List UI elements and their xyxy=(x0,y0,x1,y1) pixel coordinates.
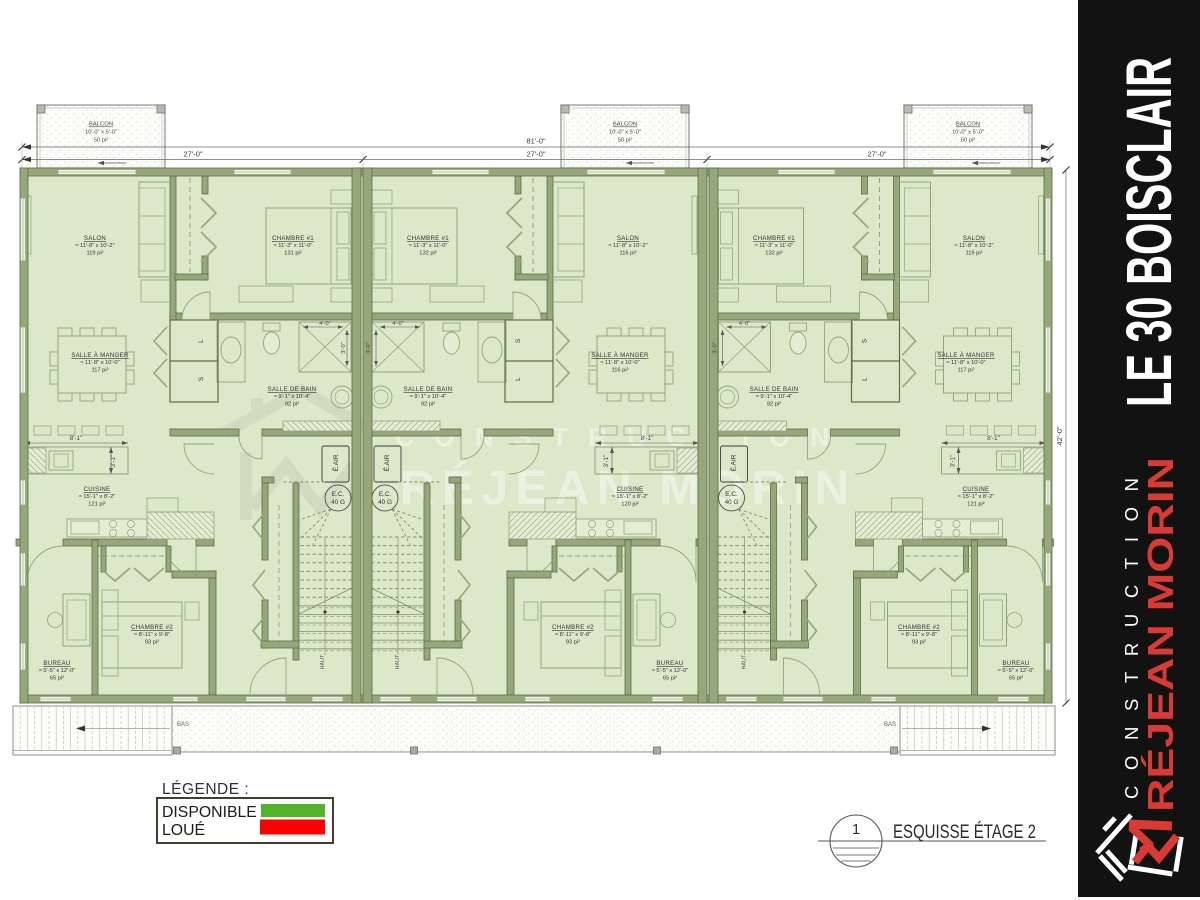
svg-text:116 pi²: 116 pi² xyxy=(620,250,637,256)
svg-text:≈ 8'-11" x 9'-8": ≈ 8'-11" x 9'-8" xyxy=(901,632,937,638)
svg-text:121 pi²: 121 pi² xyxy=(88,501,105,507)
svg-text:BAS: BAS xyxy=(177,722,189,728)
svg-text:CHAMBRE #1: CHAMBRE #1 xyxy=(407,235,449,242)
svg-text:S: S xyxy=(862,338,869,343)
svg-text:≈ 9'-1" x 10'-4": ≈ 9'-1" x 10'-4" xyxy=(274,394,311,400)
svg-text:65 pi²: 65 pi² xyxy=(1009,675,1023,681)
svg-text:SALLE À MANGER: SALLE À MANGER xyxy=(591,352,649,359)
svg-text:L: L xyxy=(515,377,522,381)
svg-text:CHAMBRE #2: CHAMBRE #2 xyxy=(898,624,940,631)
svg-text:65 pi²: 65 pi² xyxy=(50,675,64,681)
svg-text:≈ 11'-8" x 10'-2": ≈ 11'-8" x 10'-2" xyxy=(608,243,647,249)
svg-text:8'-1": 8'-1" xyxy=(987,435,1000,442)
svg-text:≈ 8'-11" x 9'-8": ≈ 8'-11" x 9'-8" xyxy=(555,632,591,638)
svg-text:117 pi²: 117 pi² xyxy=(92,367,109,373)
svg-text:CHAMBRE #1: CHAMBRE #1 xyxy=(753,235,795,242)
svg-text:≈ 11'-3" x 11'-0": ≈ 11'-3" x 11'-0" xyxy=(274,243,313,249)
svg-text:27'-0": 27'-0" xyxy=(867,150,886,159)
svg-text:4'-0": 4'-0" xyxy=(319,321,331,327)
svg-text:E.C.: E.C. xyxy=(725,491,738,498)
svg-text:≈ 11'-8" x 10'-2": ≈ 11'-8" x 10'-2" xyxy=(75,243,114,249)
svg-text:27'-0": 27'-0" xyxy=(183,150,202,159)
svg-text:27'-0": 27'-0" xyxy=(526,150,545,159)
svg-text:93 pi²: 93 pi² xyxy=(566,639,580,645)
svg-text:SALON: SALON xyxy=(84,235,106,242)
svg-text:L: L xyxy=(198,339,205,343)
svg-text:BALCON: BALCON xyxy=(613,122,637,128)
svg-text:40 G: 40 G xyxy=(725,499,739,506)
svg-text:3'-1": 3'-1" xyxy=(950,455,957,468)
svg-text:SALLE À MANGER: SALLE À MANGER xyxy=(937,352,995,359)
svg-text:117 pi²: 117 pi² xyxy=(958,367,975,373)
svg-text:CHAMBRE #2: CHAMBRE #2 xyxy=(552,624,594,631)
svg-text:131 pi²: 131 pi² xyxy=(284,250,301,256)
svg-text:10'-0" x 5'-0": 10'-0" x 5'-0" xyxy=(85,130,117,136)
svg-text:132 pi²: 132 pi² xyxy=(765,250,782,256)
svg-text:CHAMBRE #1: CHAMBRE #1 xyxy=(272,235,314,242)
svg-text:10'-0" x 5'-0": 10'-0" x 5'-0" xyxy=(952,130,984,136)
svg-text:SALLE DE BAIN: SALLE DE BAIN xyxy=(268,386,317,393)
svg-text:81'-0": 81'-0" xyxy=(526,137,545,146)
svg-text:8'-1": 8'-1" xyxy=(70,435,83,442)
svg-text:SALON: SALON xyxy=(963,235,985,242)
svg-text:119 pi²: 119 pi² xyxy=(87,250,104,256)
svg-text:HAUT: HAUT xyxy=(395,654,401,670)
svg-text:3'-0": 3'-0" xyxy=(341,342,347,354)
svg-text:L: L xyxy=(862,377,869,381)
svg-text:119 pi²: 119 pi² xyxy=(966,250,983,256)
svg-text:Ê.AIR: Ê.AIR xyxy=(382,454,391,471)
svg-text:65 pi²: 65 pi² xyxy=(663,675,677,681)
svg-text:3'-0": 3'-0" xyxy=(713,342,719,354)
svg-text:50 pi²: 50 pi² xyxy=(94,138,108,144)
svg-text:≈ 15'-1" x 8'-2": ≈ 15'-1" x 8'-2" xyxy=(612,494,649,500)
svg-text:CONSTRUCTION: CONSTRUCTION xyxy=(1121,466,1142,799)
svg-text:≈ 11'-8" x 10'-2": ≈ 11'-8" x 10'-2" xyxy=(954,243,993,249)
svg-text:4'-0": 4'-0" xyxy=(392,321,404,327)
svg-text:≈ 11'-3" x 11'-0": ≈ 11'-3" x 11'-0" xyxy=(755,243,794,249)
svg-text:≈ 11'-8" x 10'-0": ≈ 11'-8" x 10'-0" xyxy=(600,360,639,366)
svg-text:93 pi²: 93 pi² xyxy=(912,639,926,645)
svg-text:132 pi²: 132 pi² xyxy=(419,250,436,256)
svg-text:≈ 11'-3" x 11'-0": ≈ 11'-3" x 11'-0" xyxy=(409,243,448,249)
svg-text:CUISINE: CUISINE xyxy=(84,486,111,493)
svg-text:SALLE DE BAIN: SALLE DE BAIN xyxy=(750,386,799,393)
svg-text:BUREAU: BUREAU xyxy=(1002,660,1029,667)
svg-text:SALLE À MANGER: SALLE À MANGER xyxy=(71,352,129,359)
svg-text:92 pi²: 92 pi² xyxy=(421,401,435,407)
svg-text:≈ 9'-1" x 10'-4": ≈ 9'-1" x 10'-4" xyxy=(756,394,793,400)
svg-text:CUISINE: CUISINE xyxy=(617,486,644,493)
svg-text:CUISINE: CUISINE xyxy=(963,486,990,493)
svg-text:≈ 5'-5" x 12'-0": ≈ 5'-5" x 12'-0" xyxy=(998,668,1035,674)
svg-text:E.C.: E.C. xyxy=(379,491,392,498)
svg-text:BUREAU: BUREAU xyxy=(43,660,70,667)
svg-text:E.C.: E.C. xyxy=(332,491,345,498)
svg-text:40 G: 40 G xyxy=(331,499,345,506)
svg-text:Ê.AIR: Ê.AIR xyxy=(729,454,738,471)
svg-text:BALCON: BALCON xyxy=(89,122,113,128)
svg-text:93 pi²: 93 pi² xyxy=(145,639,159,645)
svg-text:3'-1": 3'-1" xyxy=(110,455,117,468)
svg-text:≈ 15'-1" x 8'-2": ≈ 15'-1" x 8'-2" xyxy=(79,494,116,500)
svg-text:3'-1": 3'-1" xyxy=(603,455,610,468)
svg-text:BALCON: BALCON xyxy=(956,122,980,128)
svg-text:≈ 5'-5" x 12'-0": ≈ 5'-5" x 12'-0" xyxy=(39,668,76,674)
svg-text:1: 1 xyxy=(852,821,860,838)
svg-text:LÉGENDE :: LÉGENDE : xyxy=(162,781,249,798)
svg-text:S: S xyxy=(198,376,205,381)
svg-text:4'-0": 4'-0" xyxy=(739,321,751,327)
svg-text:40 G: 40 G xyxy=(378,499,392,506)
svg-text:SALON: SALON xyxy=(617,235,639,242)
svg-text:42'-0": 42'-0" xyxy=(1055,426,1064,445)
svg-text:116 pi²: 116 pi² xyxy=(612,367,629,373)
svg-text:8'-1": 8'-1" xyxy=(641,435,654,442)
svg-text:LOUÉ: LOUÉ xyxy=(162,820,205,839)
svg-text:S: S xyxy=(515,338,522,343)
svg-text:≈ 9'-1" x 10'-4": ≈ 9'-1" x 10'-4" xyxy=(410,394,447,400)
svg-text:3'-0": 3'-0" xyxy=(366,342,372,354)
svg-text:≈ 15'-1" x 8'-2": ≈ 15'-1" x 8'-2" xyxy=(958,494,995,500)
svg-text:121 pi²: 121 pi² xyxy=(967,501,984,507)
svg-text:CHAMBRE #2: CHAMBRE #2 xyxy=(131,624,173,631)
svg-text:120 pi²: 120 pi² xyxy=(621,501,638,507)
svg-text:HAUT: HAUT xyxy=(320,654,326,670)
svg-text:ESQUISSE ÉTAGE 2: ESQUISSE ÉTAGE 2 xyxy=(893,822,1036,843)
svg-text:50 pi²: 50 pi² xyxy=(961,138,975,144)
svg-text:BUREAU: BUREAU xyxy=(656,660,683,667)
svg-text:RÉJEAN MORIN: RÉJEAN MORIN xyxy=(1140,457,1181,812)
svg-text:DISPONIBLE: DISPONIBLE xyxy=(162,804,257,821)
svg-text:BAS: BAS xyxy=(884,722,896,728)
svg-text:92 pi²: 92 pi² xyxy=(285,401,299,407)
svg-text:HAUT: HAUT xyxy=(742,654,748,670)
svg-text:92 pi²: 92 pi² xyxy=(767,401,781,407)
svg-text:50 pi²: 50 pi² xyxy=(618,138,632,144)
svg-text:≈ 11'-8" x 10'-0": ≈ 11'-8" x 10'-0" xyxy=(946,360,985,366)
svg-text:10'-0" x 5'-0": 10'-0" x 5'-0" xyxy=(609,130,641,136)
svg-text:LE 30 BOISCLAIR: LE 30 BOISCLAIR xyxy=(1113,57,1185,407)
svg-text:≈ 5'-5" x 12'-0": ≈ 5'-5" x 12'-0" xyxy=(652,668,689,674)
svg-text:≈ 8'-11" x 9'-8": ≈ 8'-11" x 9'-8" xyxy=(134,632,170,638)
svg-text:≈ 11'-8" x 10'-0": ≈ 11'-8" x 10'-0" xyxy=(80,360,119,366)
svg-text:SALLE DE BAIN: SALLE DE BAIN xyxy=(404,386,453,393)
svg-text:Ê.AIR: Ê.AIR xyxy=(331,454,340,471)
